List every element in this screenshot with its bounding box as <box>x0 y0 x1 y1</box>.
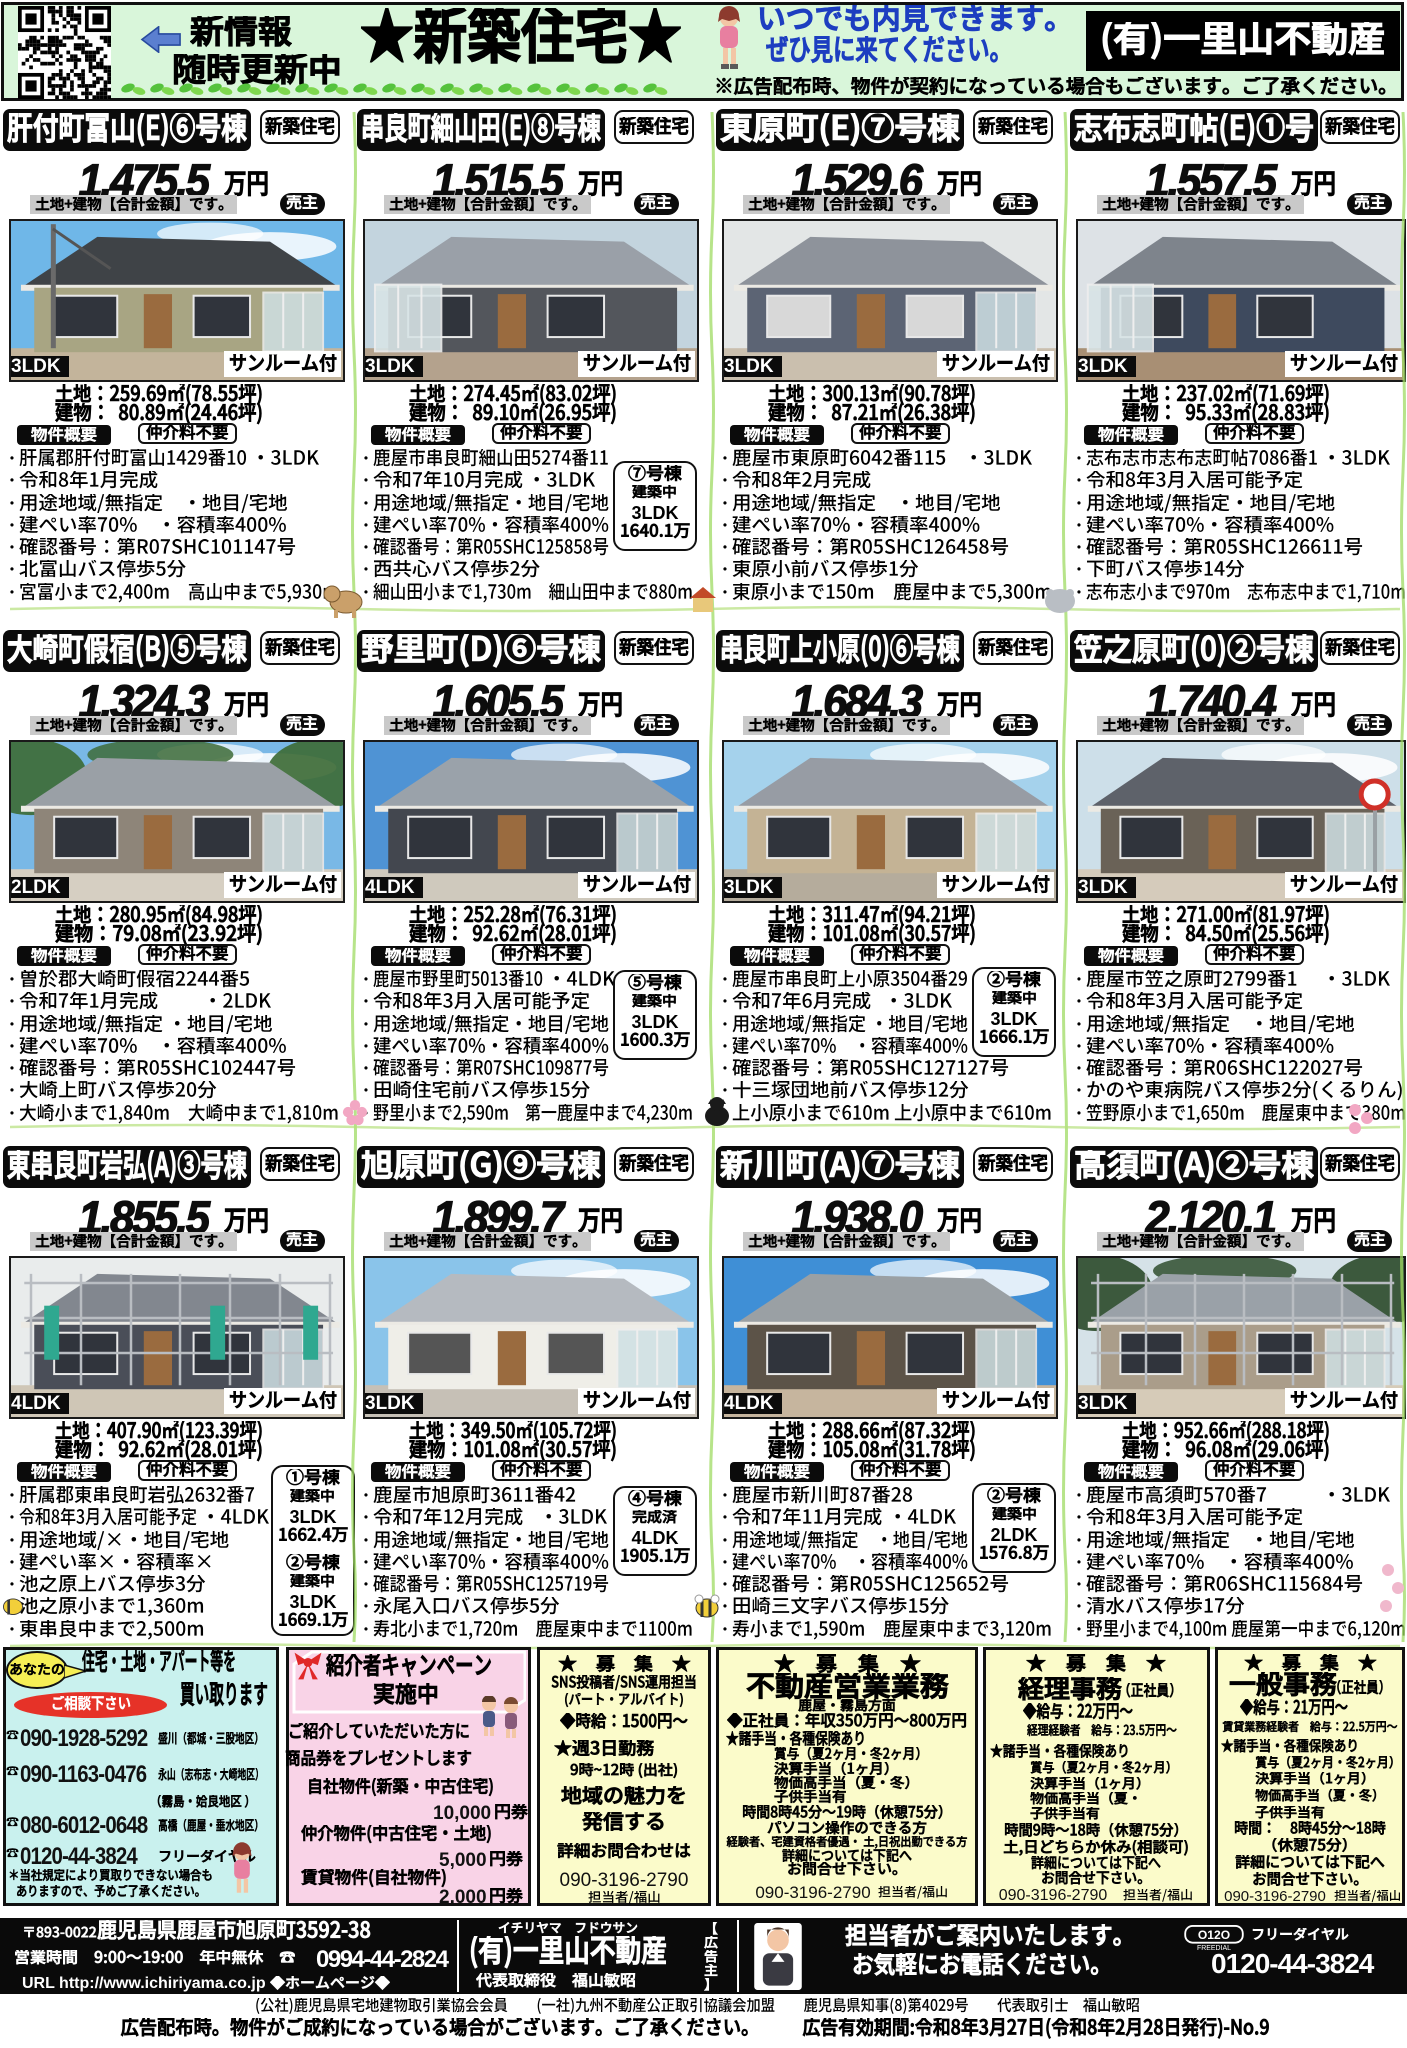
svg-text:O12O: O12O <box>1198 1928 1230 1942</box>
